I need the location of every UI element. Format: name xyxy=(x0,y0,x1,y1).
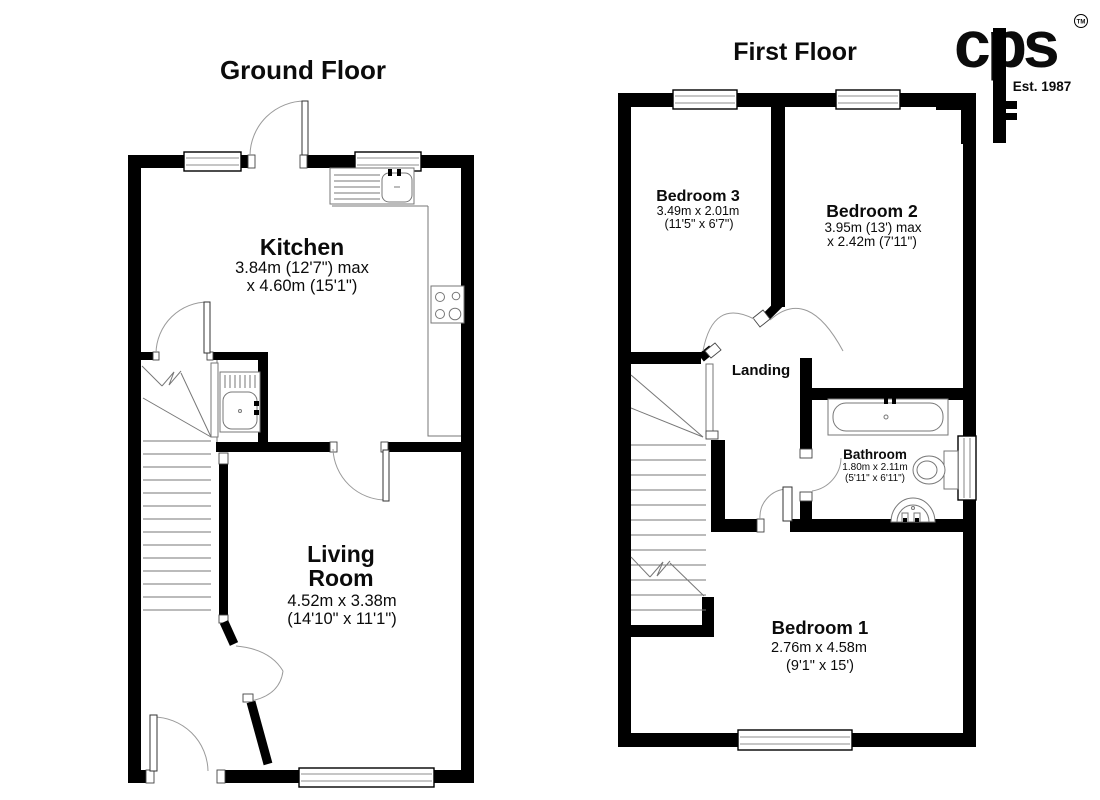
bedroom3-dim-metric: 3.49m x 2.01m xyxy=(657,204,740,218)
ground-floor-stairs xyxy=(142,363,218,610)
kitchen-dim-imperial: x 4.60m (15'1") xyxy=(247,277,358,295)
bathroom-dim-imperial: (5'11" x 6'11") xyxy=(845,473,905,484)
kitchen-hob xyxy=(431,286,464,323)
tap-icon xyxy=(254,401,259,406)
tap-icon xyxy=(254,410,259,415)
tap-icon xyxy=(884,396,888,404)
bedroom2-label: Bedroom 2 xyxy=(826,201,918,221)
kitchen-sink-unit xyxy=(330,168,414,204)
door-leaf xyxy=(783,487,792,521)
kitchen-label: Kitchen xyxy=(260,234,344,260)
trademark-text: TM xyxy=(1077,20,1086,26)
cloakroom-basin xyxy=(217,360,260,442)
bedroom1-label: Bedroom 1 xyxy=(772,617,869,638)
landing-label: Landing xyxy=(732,362,790,379)
bedroom3-dim-imperial: (11'5" x 6'7") xyxy=(664,217,733,231)
ground-floor-plan: Ground Floor xyxy=(128,55,474,787)
bedroom1-dim-metric: 2.76m x 4.58m xyxy=(771,640,867,656)
cps-logo: cps TM Est. 1987 xyxy=(936,7,1088,144)
floorplan-drawing: Ground Floor xyxy=(0,0,1100,800)
bathroom-dim-metric: 1.80m x 2.11m xyxy=(842,462,907,473)
living-room-label-line1: Living xyxy=(307,541,375,567)
first-floor-title: First Floor xyxy=(733,38,857,66)
window xyxy=(738,730,852,750)
bedroom3-label: Bedroom 3 xyxy=(656,188,740,205)
established-text: Est. 1987 xyxy=(1013,79,1072,94)
ground-floor-title: Ground Floor xyxy=(220,55,386,85)
living-room-dim-metric: 4.52m x 3.38m xyxy=(287,592,396,610)
door-leaf xyxy=(302,101,308,155)
bathroom-sink xyxy=(891,498,935,522)
toilet xyxy=(913,451,958,489)
kitchen-dim-metric: 3.84m (12'7") max xyxy=(235,259,369,277)
window xyxy=(184,152,241,171)
window xyxy=(836,90,900,109)
window xyxy=(958,436,976,500)
key-bracket-icon xyxy=(936,95,976,144)
tap-icon xyxy=(388,169,392,176)
tap-icon xyxy=(903,518,907,522)
tap-icon xyxy=(915,518,919,522)
window xyxy=(299,768,434,787)
window xyxy=(673,90,737,109)
living-room-dim-imperial: (14'10" x 11'1") xyxy=(287,610,396,628)
living-room-label-line2: Room xyxy=(308,565,373,591)
door-leaf xyxy=(251,702,268,764)
door-leaf xyxy=(204,302,210,353)
door-leaf xyxy=(383,450,389,501)
door-leaf xyxy=(150,715,157,771)
bedroom2-dim-imperial: x 2.42m (7'11") xyxy=(827,234,917,249)
bedroom2-dim-metric: 3.95m (13') max xyxy=(824,220,921,235)
first-floor-stairs xyxy=(631,364,718,610)
floorplan-page: Ground Floor xyxy=(0,0,1100,800)
key-tooth-icon xyxy=(1006,101,1017,109)
bedroom1-dim-imperial: (9'1" x 15') xyxy=(786,658,854,674)
tap-icon xyxy=(397,169,401,176)
first-floor-plan: First Floor xyxy=(618,38,976,750)
tap-icon xyxy=(892,396,896,404)
bathroom-label: Bathroom xyxy=(843,447,907,462)
door-leaf xyxy=(224,622,234,644)
key-stem-icon xyxy=(993,28,1006,143)
bathtub xyxy=(828,396,948,435)
key-tooth-icon xyxy=(1006,113,1017,120)
